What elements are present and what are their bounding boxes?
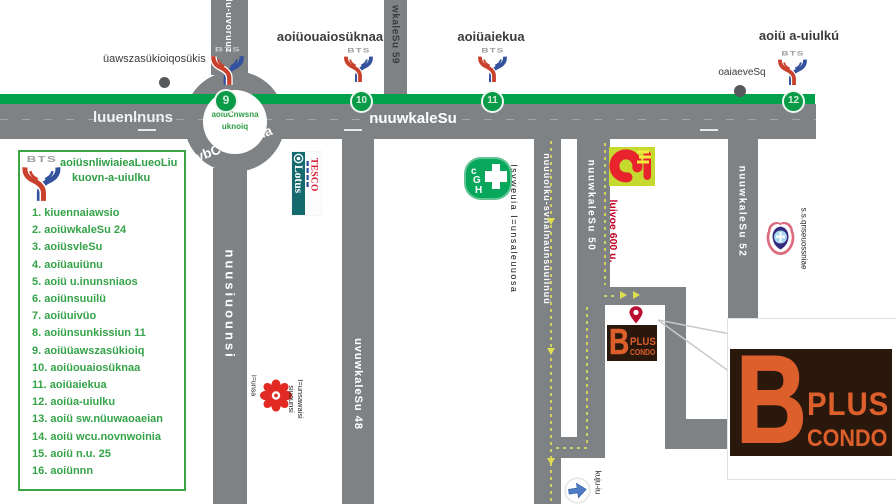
svg-text:BTS: BTS (781, 50, 804, 57)
svg-text:BTS: BTS (27, 155, 57, 164)
svg-text:TESCO: TESCO (309, 158, 319, 192)
svg-text:H: H (475, 185, 482, 196)
svg-text:BTS: BTS (215, 46, 241, 53)
svg-text:BTS: BTS (347, 47, 370, 54)
svg-text:Lotus: Lotus (292, 165, 304, 194)
svg-text:BTS: BTS (481, 47, 504, 54)
